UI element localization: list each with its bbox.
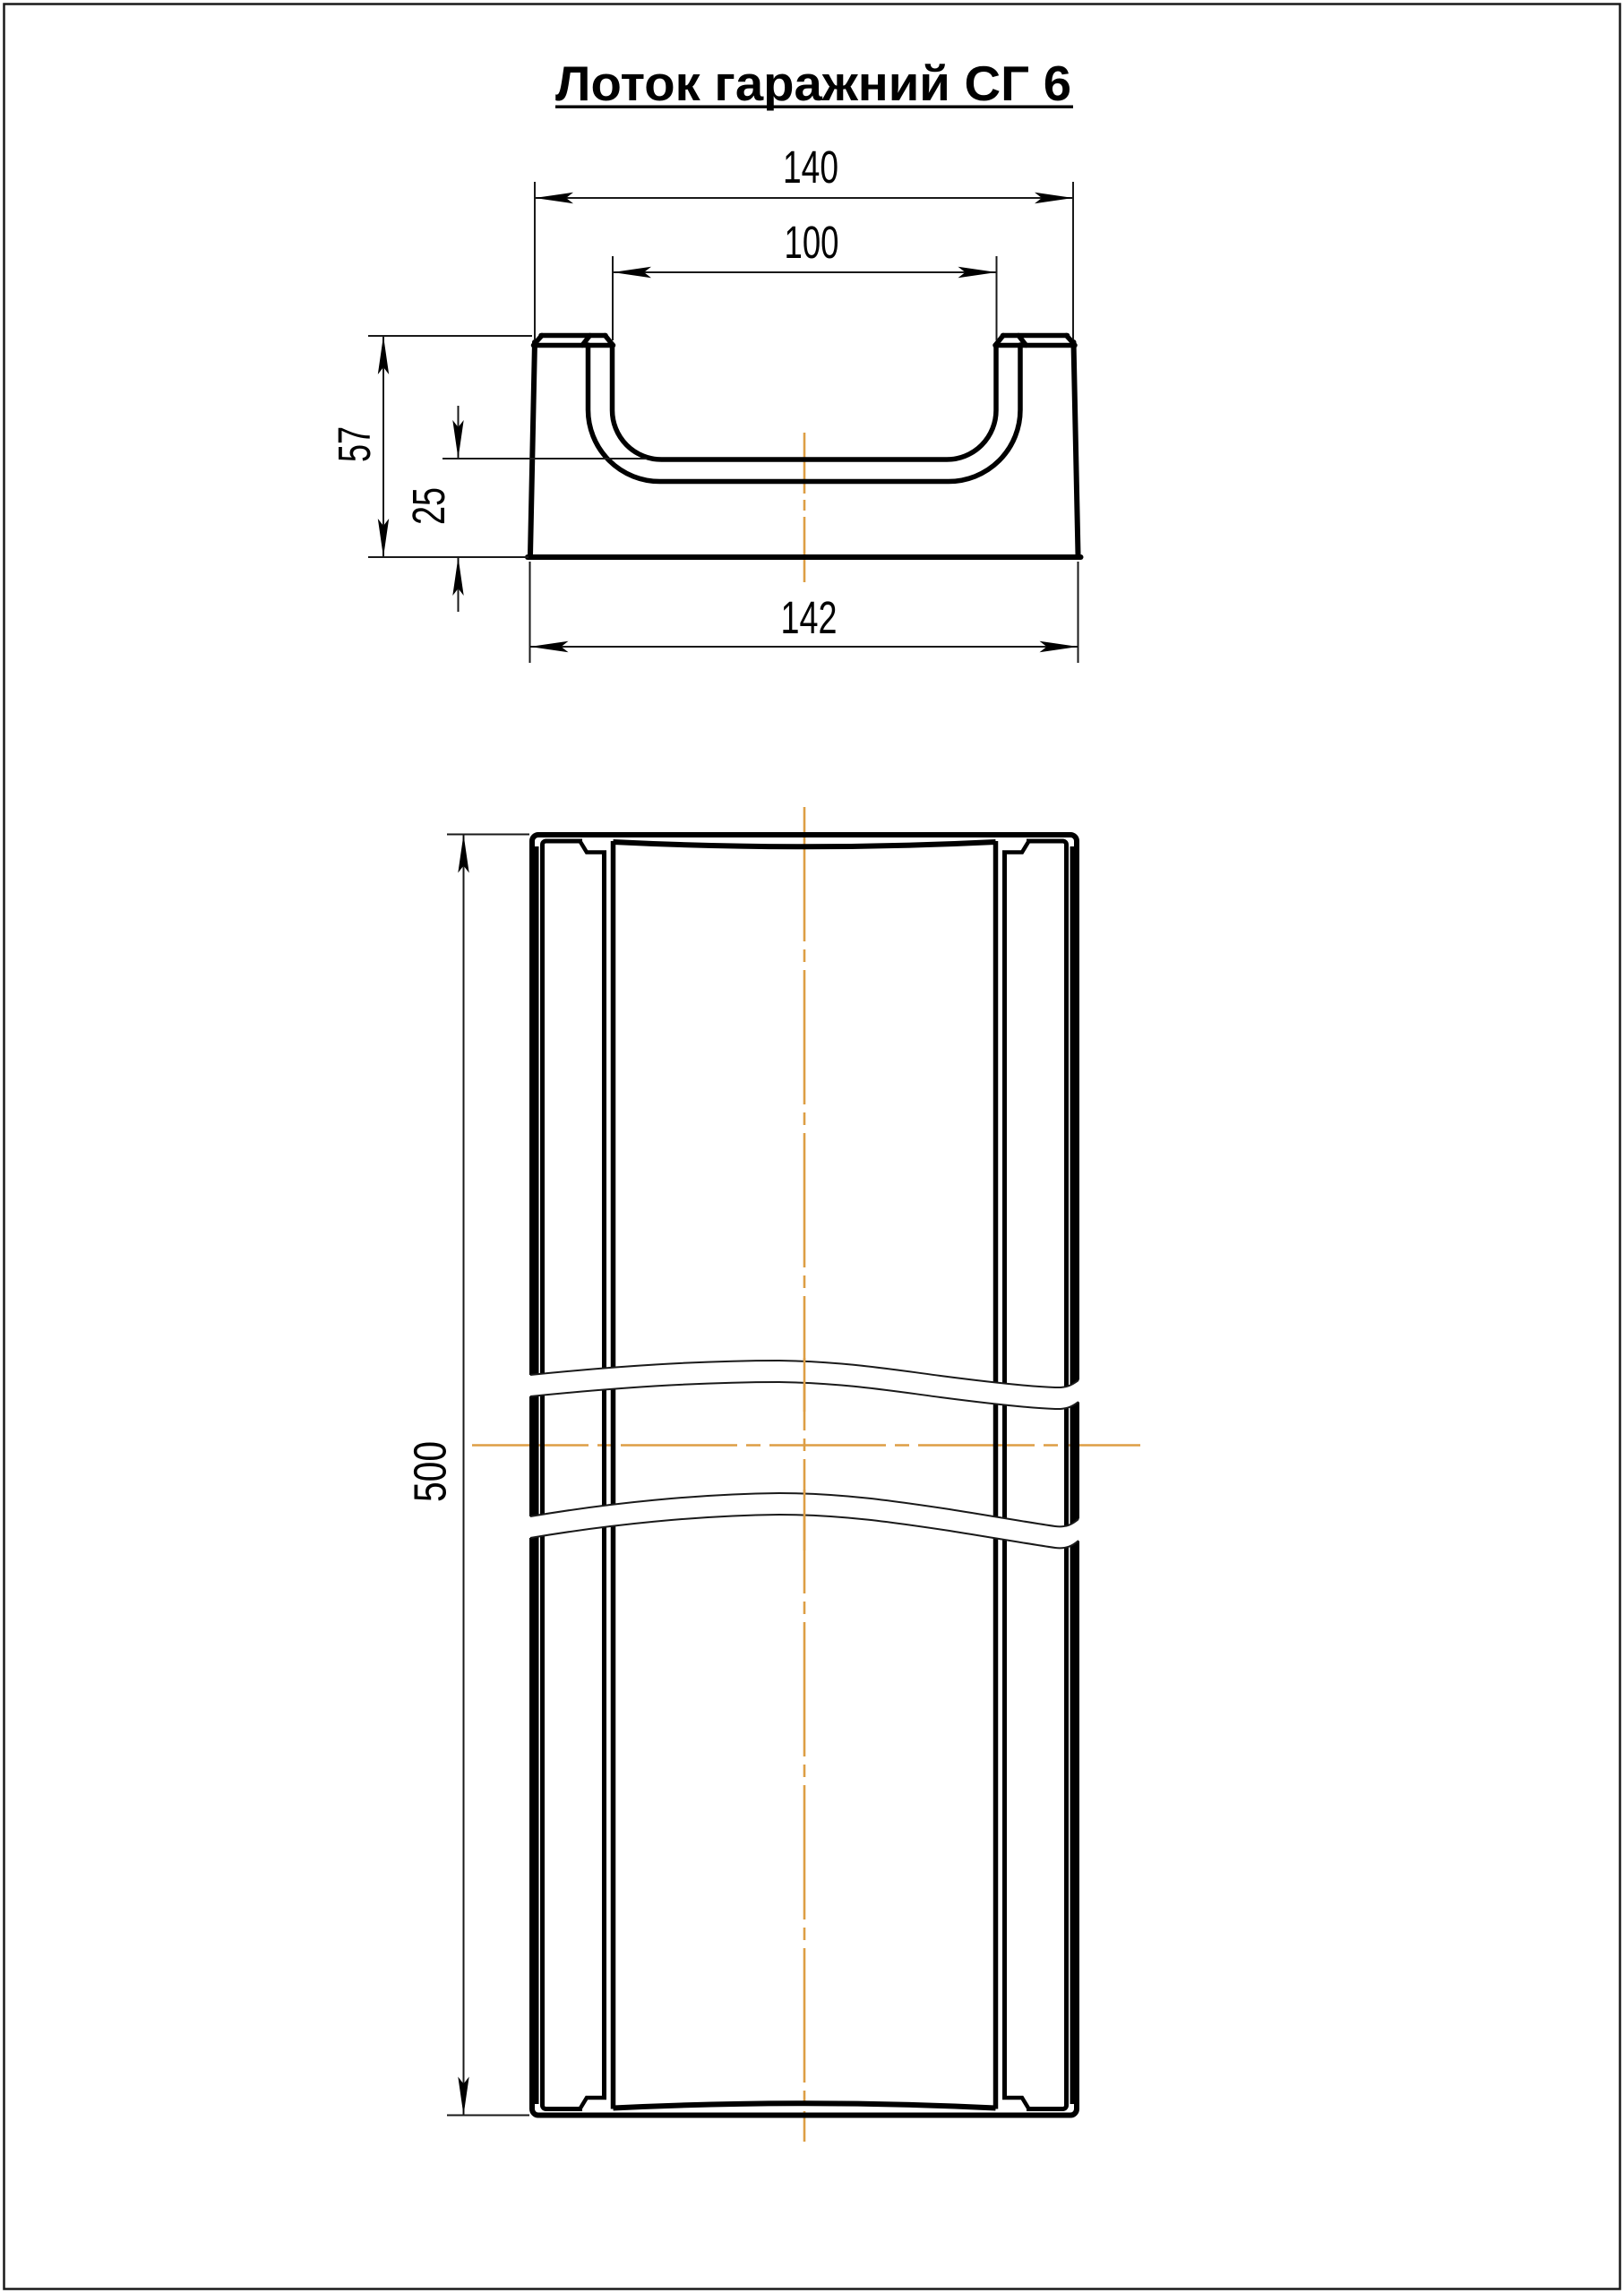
svg-text:140: 140 <box>783 142 838 193</box>
svg-text:25: 25 <box>403 487 454 525</box>
svg-text:57: 57 <box>329 426 380 462</box>
svg-text:100: 100 <box>785 217 839 268</box>
svg-text:142: 142 <box>781 592 838 643</box>
svg-text:500: 500 <box>405 1441 456 1502</box>
svg-text:Лоток гаражний СГ 6: Лоток гаражний СГ 6 <box>555 56 1071 111</box>
